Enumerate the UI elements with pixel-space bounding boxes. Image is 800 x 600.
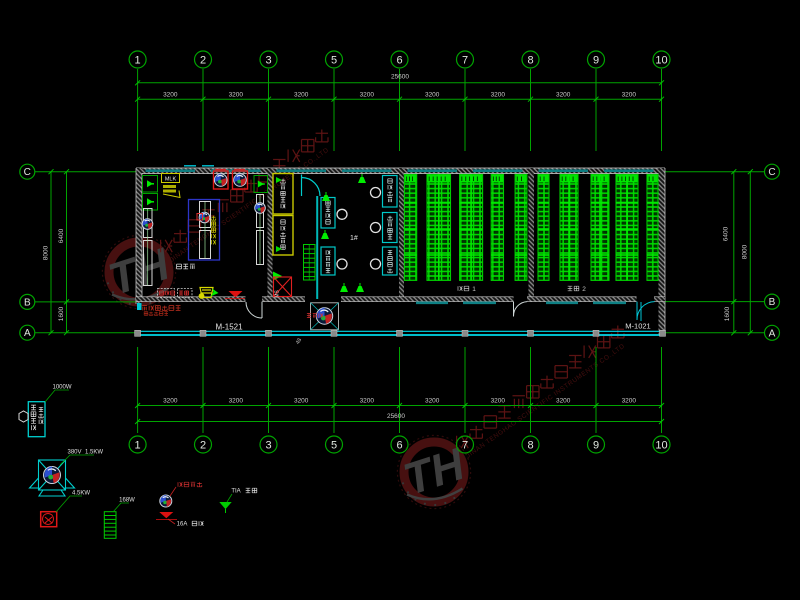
svg-text:7: 7 bbox=[462, 55, 468, 67]
svg-text:1: 1 bbox=[472, 286, 476, 293]
svg-text:1600: 1600 bbox=[58, 306, 65, 321]
svg-text:25600: 25600 bbox=[387, 413, 405, 420]
svg-text:1: 1 bbox=[135, 55, 141, 67]
svg-text:3200: 3200 bbox=[294, 398, 309, 405]
svg-text:10: 10 bbox=[655, 440, 667, 452]
svg-text:9: 9 bbox=[593, 440, 599, 452]
svg-text:M-1521: M-1521 bbox=[215, 323, 243, 332]
svg-text:5: 5 bbox=[331, 440, 337, 452]
svg-text:3: 3 bbox=[265, 440, 271, 452]
svg-text:16A: 16A bbox=[177, 522, 188, 528]
svg-text:1000W: 1000W bbox=[52, 385, 71, 391]
svg-text:C: C bbox=[768, 167, 775, 178]
svg-text:3200: 3200 bbox=[360, 92, 375, 99]
svg-text:2: 2 bbox=[200, 55, 206, 67]
svg-text:3200: 3200 bbox=[163, 398, 178, 405]
svg-text:6: 6 bbox=[396, 440, 402, 452]
svg-text:9: 9 bbox=[593, 55, 599, 67]
svg-text:3200: 3200 bbox=[622, 92, 637, 99]
svg-text:M-1021: M-1021 bbox=[625, 322, 650, 331]
svg-text:3200: 3200 bbox=[163, 92, 178, 99]
svg-text:6400: 6400 bbox=[58, 228, 65, 243]
svg-text:8000: 8000 bbox=[43, 245, 50, 260]
svg-text:B: B bbox=[24, 297, 31, 308]
svg-text:2: 2 bbox=[200, 440, 206, 452]
svg-text:8000: 8000 bbox=[742, 244, 749, 259]
svg-text:1: 1 bbox=[135, 440, 141, 452]
svg-text:3200: 3200 bbox=[229, 92, 244, 99]
svg-text:3200: 3200 bbox=[425, 92, 440, 99]
svg-text:8: 8 bbox=[527, 440, 533, 452]
svg-text:TIA: TIA bbox=[231, 489, 240, 495]
svg-text:MS: MS bbox=[275, 290, 281, 298]
svg-text:8: 8 bbox=[527, 55, 533, 67]
svg-text:25600: 25600 bbox=[391, 74, 409, 81]
svg-text:4.5KW: 4.5KW bbox=[72, 491, 90, 497]
svg-text:10: 10 bbox=[655, 55, 667, 67]
svg-text:6: 6 bbox=[396, 55, 402, 67]
svg-text:3: 3 bbox=[265, 55, 271, 67]
svg-text:3200: 3200 bbox=[229, 398, 244, 405]
svg-text:1.5KW: 1.5KW bbox=[85, 450, 103, 456]
svg-text:3200: 3200 bbox=[294, 92, 309, 99]
svg-text:3200: 3200 bbox=[491, 398, 506, 405]
svg-text:B: B bbox=[769, 297, 776, 308]
svg-text:A: A bbox=[24, 328, 31, 339]
svg-text:7: 7 bbox=[462, 440, 468, 452]
svg-text:3200: 3200 bbox=[360, 398, 375, 405]
svg-text:MLK: MLK bbox=[165, 177, 177, 183]
svg-text:168W: 168W bbox=[119, 498, 135, 504]
svg-text:6400: 6400 bbox=[723, 226, 730, 241]
svg-text:C: C bbox=[24, 167, 31, 178]
svg-text:3200: 3200 bbox=[556, 398, 571, 405]
svg-text:5: 5 bbox=[331, 55, 337, 67]
svg-text:1#: 1# bbox=[350, 235, 358, 242]
svg-text:1600: 1600 bbox=[724, 306, 731, 321]
svg-text:3200: 3200 bbox=[556, 92, 571, 99]
svg-text:3200: 3200 bbox=[425, 398, 440, 405]
svg-text:3200: 3200 bbox=[491, 92, 506, 99]
svg-text:3200: 3200 bbox=[622, 398, 637, 405]
svg-text:A: A bbox=[769, 328, 776, 339]
svg-text:2: 2 bbox=[582, 286, 586, 293]
svg-text:380V: 380V bbox=[67, 450, 81, 456]
